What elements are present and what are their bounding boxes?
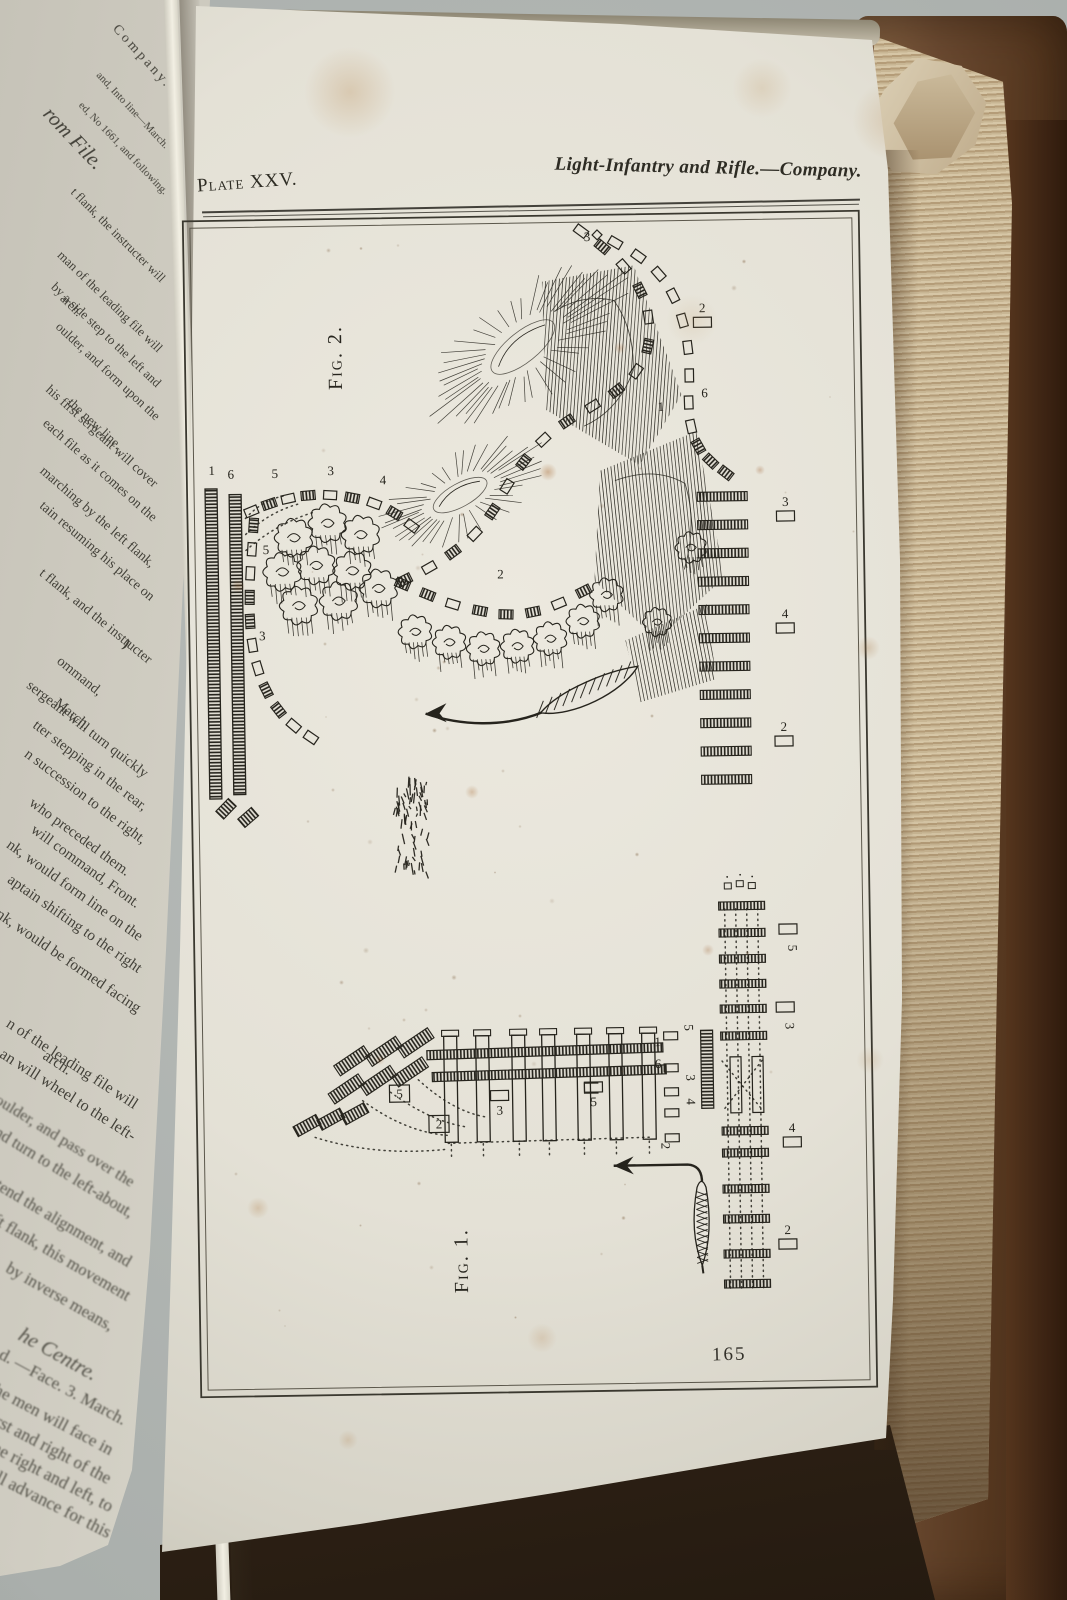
foxing-spot — [402, 1018, 405, 1021]
book-photograph: Company.and, Into line—March.ed, No 1661… — [0, 0, 1067, 1600]
foxing-spot — [762, 1187, 765, 1190]
foxing-spot — [321, 448, 326, 453]
foxing-spot — [417, 1181, 422, 1186]
foxing-spot — [231, 579, 245, 593]
foxing-spot — [745, 951, 749, 955]
foxing-spot — [325, 716, 327, 718]
foxing-spot — [451, 975, 457, 981]
foxing-spot — [367, 839, 373, 845]
foxing-spot — [600, 1252, 604, 1256]
foxing-spot — [621, 1216, 626, 1221]
foxing-spot — [432, 728, 436, 732]
foxing-spot — [501, 769, 505, 773]
foxing-spot — [363, 947, 369, 953]
foxing-spot — [460, 512, 465, 517]
foxing-spot — [650, 714, 654, 718]
foxing-spot — [702, 944, 714, 956]
foxing-spot — [742, 259, 746, 263]
foxing-spot — [666, 294, 718, 346]
foxing-spot — [278, 1309, 281, 1312]
foxing-spot — [445, 726, 450, 731]
foxing-spot — [852, 530, 855, 533]
foxing-spot — [424, 1008, 429, 1013]
foxing-spot — [727, 1124, 730, 1127]
foxing-spot — [304, 46, 396, 138]
foxing-spot — [784, 491, 787, 494]
foxing-spot — [414, 697, 419, 702]
foxing-spot — [856, 1046, 884, 1074]
foxing-spot — [755, 465, 765, 475]
foxing-spot — [421, 553, 424, 556]
foxing-spot — [234, 1172, 238, 1176]
foxing-spot — [339, 980, 344, 985]
foxing-spot — [367, 1027, 370, 1030]
foxing-spot — [531, 1061, 537, 1067]
foxing-spot — [769, 1070, 773, 1074]
foxing-spot — [331, 788, 334, 791]
foxing-spot — [549, 898, 555, 904]
foxing-spot — [311, 571, 314, 574]
foxing-spot — [415, 565, 421, 571]
foxing-spot — [599, 503, 605, 509]
foxing-spot — [465, 785, 479, 799]
foxing-spot — [621, 1070, 624, 1073]
foxing-spot — [306, 820, 309, 823]
foxing-spot — [284, 1325, 286, 1327]
foxing-spot — [338, 1430, 358, 1450]
foxing-spot — [730, 607, 734, 611]
foxing-spot — [856, 636, 880, 660]
foxing-spot — [624, 1183, 627, 1186]
foxing-spot — [494, 871, 496, 873]
book-cover-edge — [1006, 120, 1067, 1600]
foxing-spot — [442, 660, 446, 664]
foxing-spot — [247, 1197, 269, 1219]
foxing-spot — [539, 463, 557, 481]
foxing-spot — [635, 852, 640, 857]
foxing-spot — [514, 1316, 517, 1319]
foxing-spot — [527, 1323, 557, 1353]
foxing-spot — [436, 666, 440, 670]
foxing-spot — [732, 58, 792, 118]
foxing-spot — [429, 1265, 434, 1270]
foxing-spot — [518, 1014, 522, 1018]
foxing-spot — [359, 247, 363, 251]
foxing-spot — [829, 396, 831, 398]
foxing-spot — [323, 642, 327, 646]
foxing-spot — [731, 285, 737, 291]
foxing-spot — [326, 248, 331, 253]
foxing-spot — [639, 467, 642, 470]
foxing-spot — [396, 244, 399, 247]
foxing-spot — [614, 342, 626, 354]
foxing-spot — [375, 1055, 385, 1065]
foxing-spot — [359, 1224, 363, 1228]
foxing-spot — [518, 825, 522, 829]
